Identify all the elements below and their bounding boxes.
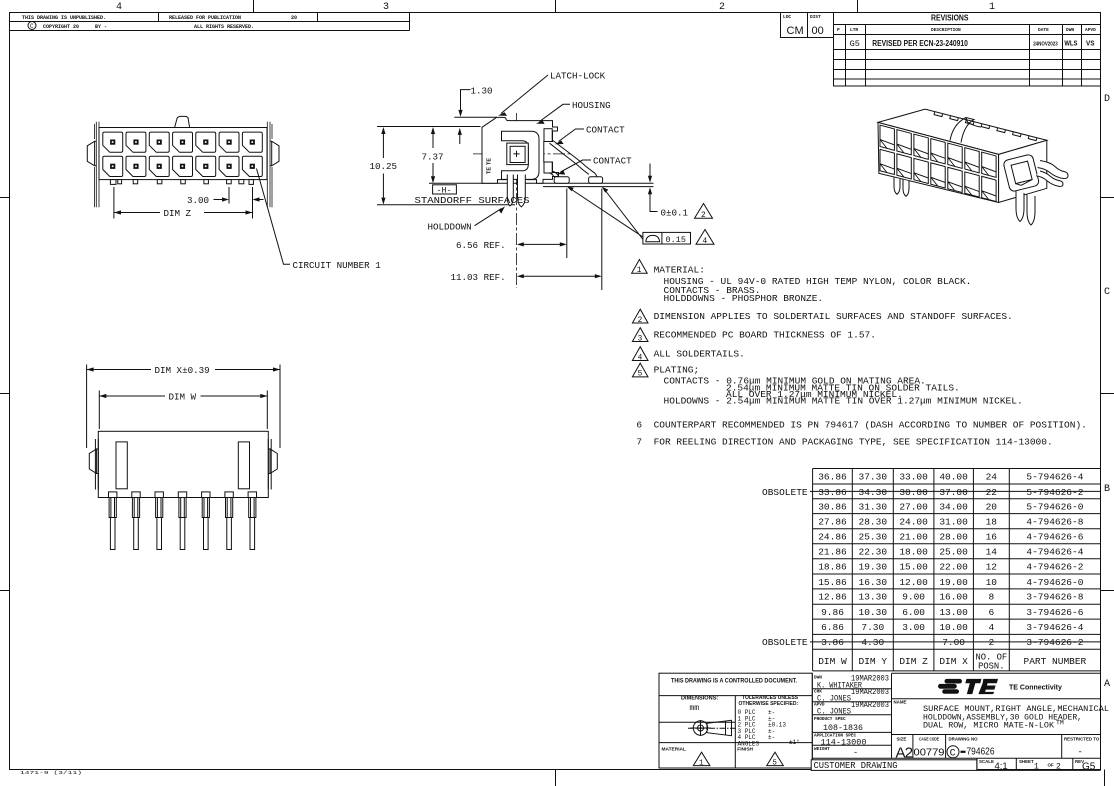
svg-text:DIM W: DIM W <box>169 392 197 403</box>
svg-text:STANDORFF SURFACES: STANDORFF SURFACES <box>415 195 530 206</box>
svg-text:FOR REELING DIRECTION AND PACK: FOR REELING DIRECTION AND PACKAGING TYPE… <box>654 437 1053 448</box>
svg-text:1: 1 <box>1034 763 1039 772</box>
svg-text:CIRCUIT NUMBER 1: CIRCUIT NUMBER 1 <box>293 260 382 271</box>
svg-text:B: B <box>1104 484 1110 495</box>
svg-text:3-794626-2: 3-794626-2 <box>1026 637 1083 648</box>
svg-text:DRAWING NO: DRAWING NO <box>949 737 979 742</box>
svg-text:MATERIAL: MATERIAL <box>662 747 686 753</box>
svg-text:15.86: 15.86 <box>818 577 847 588</box>
svg-text:19MAR2003: 19MAR2003 <box>851 676 889 684</box>
svg-text:00779: 00779 <box>914 747 945 759</box>
svg-text:10.00: 10.00 <box>939 622 968 633</box>
svg-text:30.00: 30.00 <box>899 487 928 498</box>
svg-text:BY -: BY - <box>95 24 107 30</box>
svg-text:24: 24 <box>986 471 998 482</box>
svg-text:ANGLES: ANGLES <box>738 740 760 747</box>
svg-text:DIMENSION APPLIES TO SOLDERTAI: DIMENSION APPLIES TO SOLDERTAIL SURFACES… <box>654 311 1013 322</box>
svg-text:CM: CM <box>787 25 804 37</box>
svg-text:HOUSING: HOUSING <box>572 100 611 111</box>
svg-text:2: 2 <box>988 637 994 648</box>
svg-text:ALL RIGHTS RESERVED.: ALL RIGHTS RESERVED. <box>194 24 254 30</box>
svg-text:D: D <box>1104 94 1110 105</box>
svg-text:A2: A2 <box>896 744 913 761</box>
svg-text:DESCRIPTION: DESCRIPTION <box>931 27 961 33</box>
svg-text:WLS: WLS <box>1064 39 1077 48</box>
svg-text:C. JONES: C. JONES <box>817 696 851 704</box>
svg-text:19.00: 19.00 <box>939 577 968 588</box>
svg-text:31.30: 31.30 <box>859 502 888 513</box>
svg-text:34.30: 34.30 <box>859 487 888 498</box>
svg-text:6.56 REF.: 6.56 REF. <box>456 240 506 251</box>
svg-text:33.86: 33.86 <box>818 487 847 498</box>
svg-text:±1°: ±1° <box>789 739 800 746</box>
svg-text:DUAL ROW, MICRO MATE-N-LOK: DUAL ROW, MICRO MATE-N-LOK <box>923 721 1055 731</box>
svg-text:REVISIONS: REVISIONS <box>931 13 969 22</box>
svg-text:2: 2 <box>701 212 706 220</box>
svg-text:OBSOLETE: OBSOLETE <box>762 637 808 648</box>
svg-text:4-794626-6: 4-794626-6 <box>1026 532 1083 543</box>
svg-text:DWN: DWN <box>814 676 822 681</box>
svg-text:24.86: 24.86 <box>818 532 847 543</box>
svg-text:TE: TE <box>487 158 493 165</box>
svg-text:4: 4 <box>116 2 122 13</box>
svg-text:DIMENSIONS:: DIMENSIONS: <box>681 696 718 702</box>
svg-text:37.30: 37.30 <box>859 471 888 482</box>
svg-text:16.00: 16.00 <box>939 592 968 603</box>
svg-text:19MAR2003: 19MAR2003 <box>851 689 889 697</box>
svg-text:THIS DRAWING IS A CONTROLLED D: THIS DRAWING IS A CONTROLLED DOCUMENT. <box>671 679 797 685</box>
svg-text:HOLDOWNS - 2.54μm MINIMUM MATT: HOLDOWNS - 2.54μm MINIMUM MATTE TIN OVER… <box>664 396 1023 407</box>
svg-text:PLATING;: PLATING; <box>654 365 700 376</box>
svg-text:12: 12 <box>986 562 998 573</box>
svg-text:CAGE CODE: CAGE CODE <box>919 737 939 742</box>
svg-text:11.03 REF.: 11.03 REF. <box>451 272 506 283</box>
svg-text:CUSTOMER DRAWING: CUSTOMER DRAWING <box>814 761 898 771</box>
svg-text:OF: OF <box>1048 763 1054 768</box>
svg-text:LOC: LOC <box>783 14 791 20</box>
svg-text:1.30: 1.30 <box>471 85 493 96</box>
svg-text:C. JONES: C. JONES <box>817 709 851 717</box>
svg-text:2: 2 <box>638 317 643 325</box>
svg-text:REVISED PER ECN-23-240910: REVISED PER ECN-23-240910 <box>872 39 968 48</box>
svg-text:12.86: 12.86 <box>818 592 847 603</box>
svg-text:RESTRICTED TO: RESTRICTED TO <box>1064 737 1100 742</box>
svg-text:WEIGHT: WEIGHT <box>814 747 830 752</box>
svg-text:G5: G5 <box>1082 761 1096 772</box>
svg-text:16: 16 <box>986 532 998 543</box>
svg-text:3: 3 <box>638 335 643 343</box>
svg-text:21.86: 21.86 <box>818 547 847 558</box>
svg-text:A: A <box>1104 679 1110 690</box>
svg-text:1: 1 <box>699 759 704 767</box>
svg-text:24NOV2023: 24NOV2023 <box>1033 41 1058 47</box>
svg-text:POSN.: POSN. <box>978 661 1004 671</box>
svg-text:PRODUCT SPEC: PRODUCT SPEC <box>814 717 846 722</box>
svg-text:TE Connectivity: TE Connectivity <box>1009 684 1062 691</box>
svg-text:PART NUMBER: PART NUMBER <box>1024 656 1087 667</box>
svg-text:31.00: 31.00 <box>939 516 968 527</box>
svg-text:TE: TE <box>487 167 493 174</box>
svg-text:mm: mm <box>690 704 700 713</box>
svg-text:36.86: 36.86 <box>818 471 847 482</box>
svg-text:14: 14 <box>986 547 998 558</box>
svg-text:HOLDDOWN: HOLDDOWN <box>428 222 472 233</box>
svg-text:FINISH: FINISH <box>737 747 753 753</box>
svg-text:THIS DRAWING IS UNPUBLISHED.: THIS DRAWING IS UNPUBLISHED. <box>22 15 106 21</box>
svg-text:MATERIAL:: MATERIAL: <box>654 264 705 275</box>
svg-text:7.30: 7.30 <box>861 622 884 633</box>
svg-text:DIM X: DIM X <box>939 656 968 667</box>
svg-text:20: 20 <box>986 502 998 513</box>
svg-text:5: 5 <box>772 759 777 767</box>
svg-text:15.00: 15.00 <box>899 562 928 573</box>
svg-text:1: 1 <box>989 2 995 13</box>
svg-text:LTR: LTR <box>850 27 858 33</box>
svg-text:SIZE: SIZE <box>897 737 907 742</box>
svg-text:OTHERWISE SPECIFIED:: OTHERWISE SPECIFIED: <box>739 701 799 707</box>
svg-text:37.00: 37.00 <box>939 487 968 498</box>
svg-text:30.86: 30.86 <box>818 502 847 513</box>
svg-text:10: 10 <box>986 577 998 588</box>
svg-text:DIM Y: DIM Y <box>859 656 888 667</box>
svg-text:19MAR2003: 19MAR2003 <box>851 702 889 710</box>
svg-text:APVD: APVD <box>1085 27 1096 33</box>
svg-text:4: 4 <box>638 354 643 362</box>
svg-text:7.00: 7.00 <box>942 637 965 648</box>
svg-text:2: 2 <box>1056 763 1061 772</box>
svg-text:00: 00 <box>812 25 824 37</box>
svg-text:9.86: 9.86 <box>821 607 844 618</box>
svg-text:28.30: 28.30 <box>859 516 888 527</box>
svg-text:-H-: -H- <box>437 185 452 195</box>
svg-text:2: 2 <box>719 2 725 13</box>
svg-text:DIST: DIST <box>810 14 821 20</box>
svg-text:4-794626-4: 4-794626-4 <box>1026 547 1083 558</box>
svg-text:22.00: 22.00 <box>939 562 968 573</box>
svg-text:TM: TM <box>1056 720 1064 727</box>
svg-text:40.00: 40.00 <box>939 471 968 482</box>
svg-text:SCALE: SCALE <box>979 759 994 764</box>
svg-text:4-794626-0: 4-794626-0 <box>1026 577 1083 588</box>
svg-text:3-794626-6: 3-794626-6 <box>1026 607 1083 618</box>
svg-text:4: 4 <box>703 238 708 246</box>
svg-text:19.30: 19.30 <box>859 562 888 573</box>
svg-text:5-794626-0: 5-794626-0 <box>1026 502 1083 513</box>
svg-text:ALL SOLDERTAILS.: ALL SOLDERTAILS. <box>654 348 745 359</box>
svg-text:18.00: 18.00 <box>899 547 928 558</box>
svg-text:22.30: 22.30 <box>859 547 888 558</box>
svg-text:21.00: 21.00 <box>899 532 928 543</box>
svg-text:33.00: 33.00 <box>899 471 928 482</box>
svg-text:6: 6 <box>988 607 994 618</box>
svg-text:25.00: 25.00 <box>939 547 968 558</box>
svg-text:DIM X±0.39: DIM X±0.39 <box>155 365 210 376</box>
svg-text:P: P <box>837 27 840 33</box>
svg-text:4.30: 4.30 <box>861 637 884 648</box>
svg-text:24.00: 24.00 <box>899 516 928 527</box>
svg-text:CONTACT: CONTACT <box>586 125 625 136</box>
svg-text:COPYRIGHT 20: COPYRIGHT 20 <box>43 24 79 30</box>
svg-text:-: - <box>1078 748 1083 758</box>
svg-text:SHEET: SHEET <box>1019 759 1034 764</box>
svg-text:DIM Z: DIM Z <box>899 656 928 667</box>
svg-text:8: 8 <box>988 592 994 603</box>
svg-text:108-1836: 108-1836 <box>823 723 863 733</box>
svg-text:RELEASED FOR PUBLICATION: RELEASED FOR PUBLICATION <box>169 15 241 21</box>
svg-text:28.00: 28.00 <box>939 532 968 543</box>
svg-text:10.25: 10.25 <box>370 161 398 172</box>
svg-text:G5: G5 <box>850 39 860 49</box>
svg-text:114-13000: 114-13000 <box>821 737 867 747</box>
svg-text:5-794626-2: 5-794626-2 <box>1026 487 1083 498</box>
svg-text:OBSOLETE: OBSOLETE <box>762 487 808 498</box>
svg-text:±-: ±- <box>768 734 775 741</box>
svg-text:5-794626-4: 5-794626-4 <box>1026 471 1083 482</box>
svg-text:C: C <box>1104 287 1110 298</box>
svg-text:C: C <box>950 748 956 759</box>
svg-text:13.30: 13.30 <box>859 592 888 603</box>
svg-text:3.00: 3.00 <box>187 195 209 206</box>
svg-text:DIM W: DIM W <box>818 656 847 667</box>
svg-text:NAME: NAME <box>894 699 907 704</box>
svg-text:25.30: 25.30 <box>859 532 888 543</box>
svg-text:5: 5 <box>638 371 643 379</box>
svg-text:-: - <box>853 748 858 758</box>
svg-text:4:1: 4:1 <box>995 761 1008 772</box>
svg-text:CONTACT: CONTACT <box>593 155 632 166</box>
svg-text:COUNTERPART RECOMMENDED IS PN: COUNTERPART RECOMMENDED IS PN 794617 (DA… <box>654 419 1087 430</box>
svg-text:7.37: 7.37 <box>422 151 444 162</box>
svg-text:3-794626-4: 3-794626-4 <box>1026 622 1083 633</box>
svg-text:3: 3 <box>383 2 389 13</box>
svg-text:1: 1 <box>637 267 642 275</box>
svg-text:20: 20 <box>291 15 297 21</box>
svg-text:4-794626-8: 4-794626-8 <box>1026 516 1083 527</box>
svg-text:13.00: 13.00 <box>939 607 968 618</box>
svg-text:34.00: 34.00 <box>939 502 968 513</box>
svg-text:HOLDDOWNS - PHOSPHOR BRONZE.: HOLDDOWNS - PHOSPHOR BRONZE. <box>664 293 824 304</box>
svg-text:C: C <box>30 23 34 30</box>
svg-text:22: 22 <box>986 487 998 498</box>
svg-text:DATE: DATE <box>1038 27 1049 33</box>
svg-text:18: 18 <box>986 516 998 527</box>
svg-text:16.30: 16.30 <box>859 577 888 588</box>
svg-text:4-794626-2: 4-794626-2 <box>1026 562 1083 573</box>
svg-text:12.00: 12.00 <box>899 577 928 588</box>
svg-text:LATCH-LOCK: LATCH-LOCK <box>550 70 606 81</box>
svg-text:0±0.1: 0±0.1 <box>661 208 689 219</box>
svg-text:3-794626-8: 3-794626-8 <box>1026 592 1083 603</box>
svg-text:6: 6 <box>636 419 642 430</box>
svg-text:3.00: 3.00 <box>902 622 925 633</box>
svg-text:4: 4 <box>988 622 994 633</box>
svg-text:0.15: 0.15 <box>666 235 687 245</box>
svg-text:6.00: 6.00 <box>902 607 925 618</box>
svg-text:3.86: 3.86 <box>821 637 844 648</box>
svg-text:DWN: DWN <box>1066 27 1074 33</box>
svg-text:10.30: 10.30 <box>859 607 888 618</box>
svg-text:794626: 794626 <box>967 746 995 758</box>
svg-text:DIM Z: DIM Z <box>164 208 192 219</box>
svg-text:6.86: 6.86 <box>821 622 844 633</box>
svg-text:27.86: 27.86 <box>818 516 847 527</box>
svg-text:7: 7 <box>636 437 642 448</box>
svg-text:RECOMMENDED PC BOARD THICKNESS: RECOMMENDED PC BOARD THICKNESS OF 1.57. <box>654 329 876 340</box>
svg-text:VS: VS <box>1086 39 1095 48</box>
svg-text:18.86: 18.86 <box>818 562 847 573</box>
svg-text:1471-9 (3/11): 1471-9 (3/11) <box>20 771 82 776</box>
svg-text:27.00: 27.00 <box>899 502 928 513</box>
svg-text:9.00: 9.00 <box>902 592 925 603</box>
